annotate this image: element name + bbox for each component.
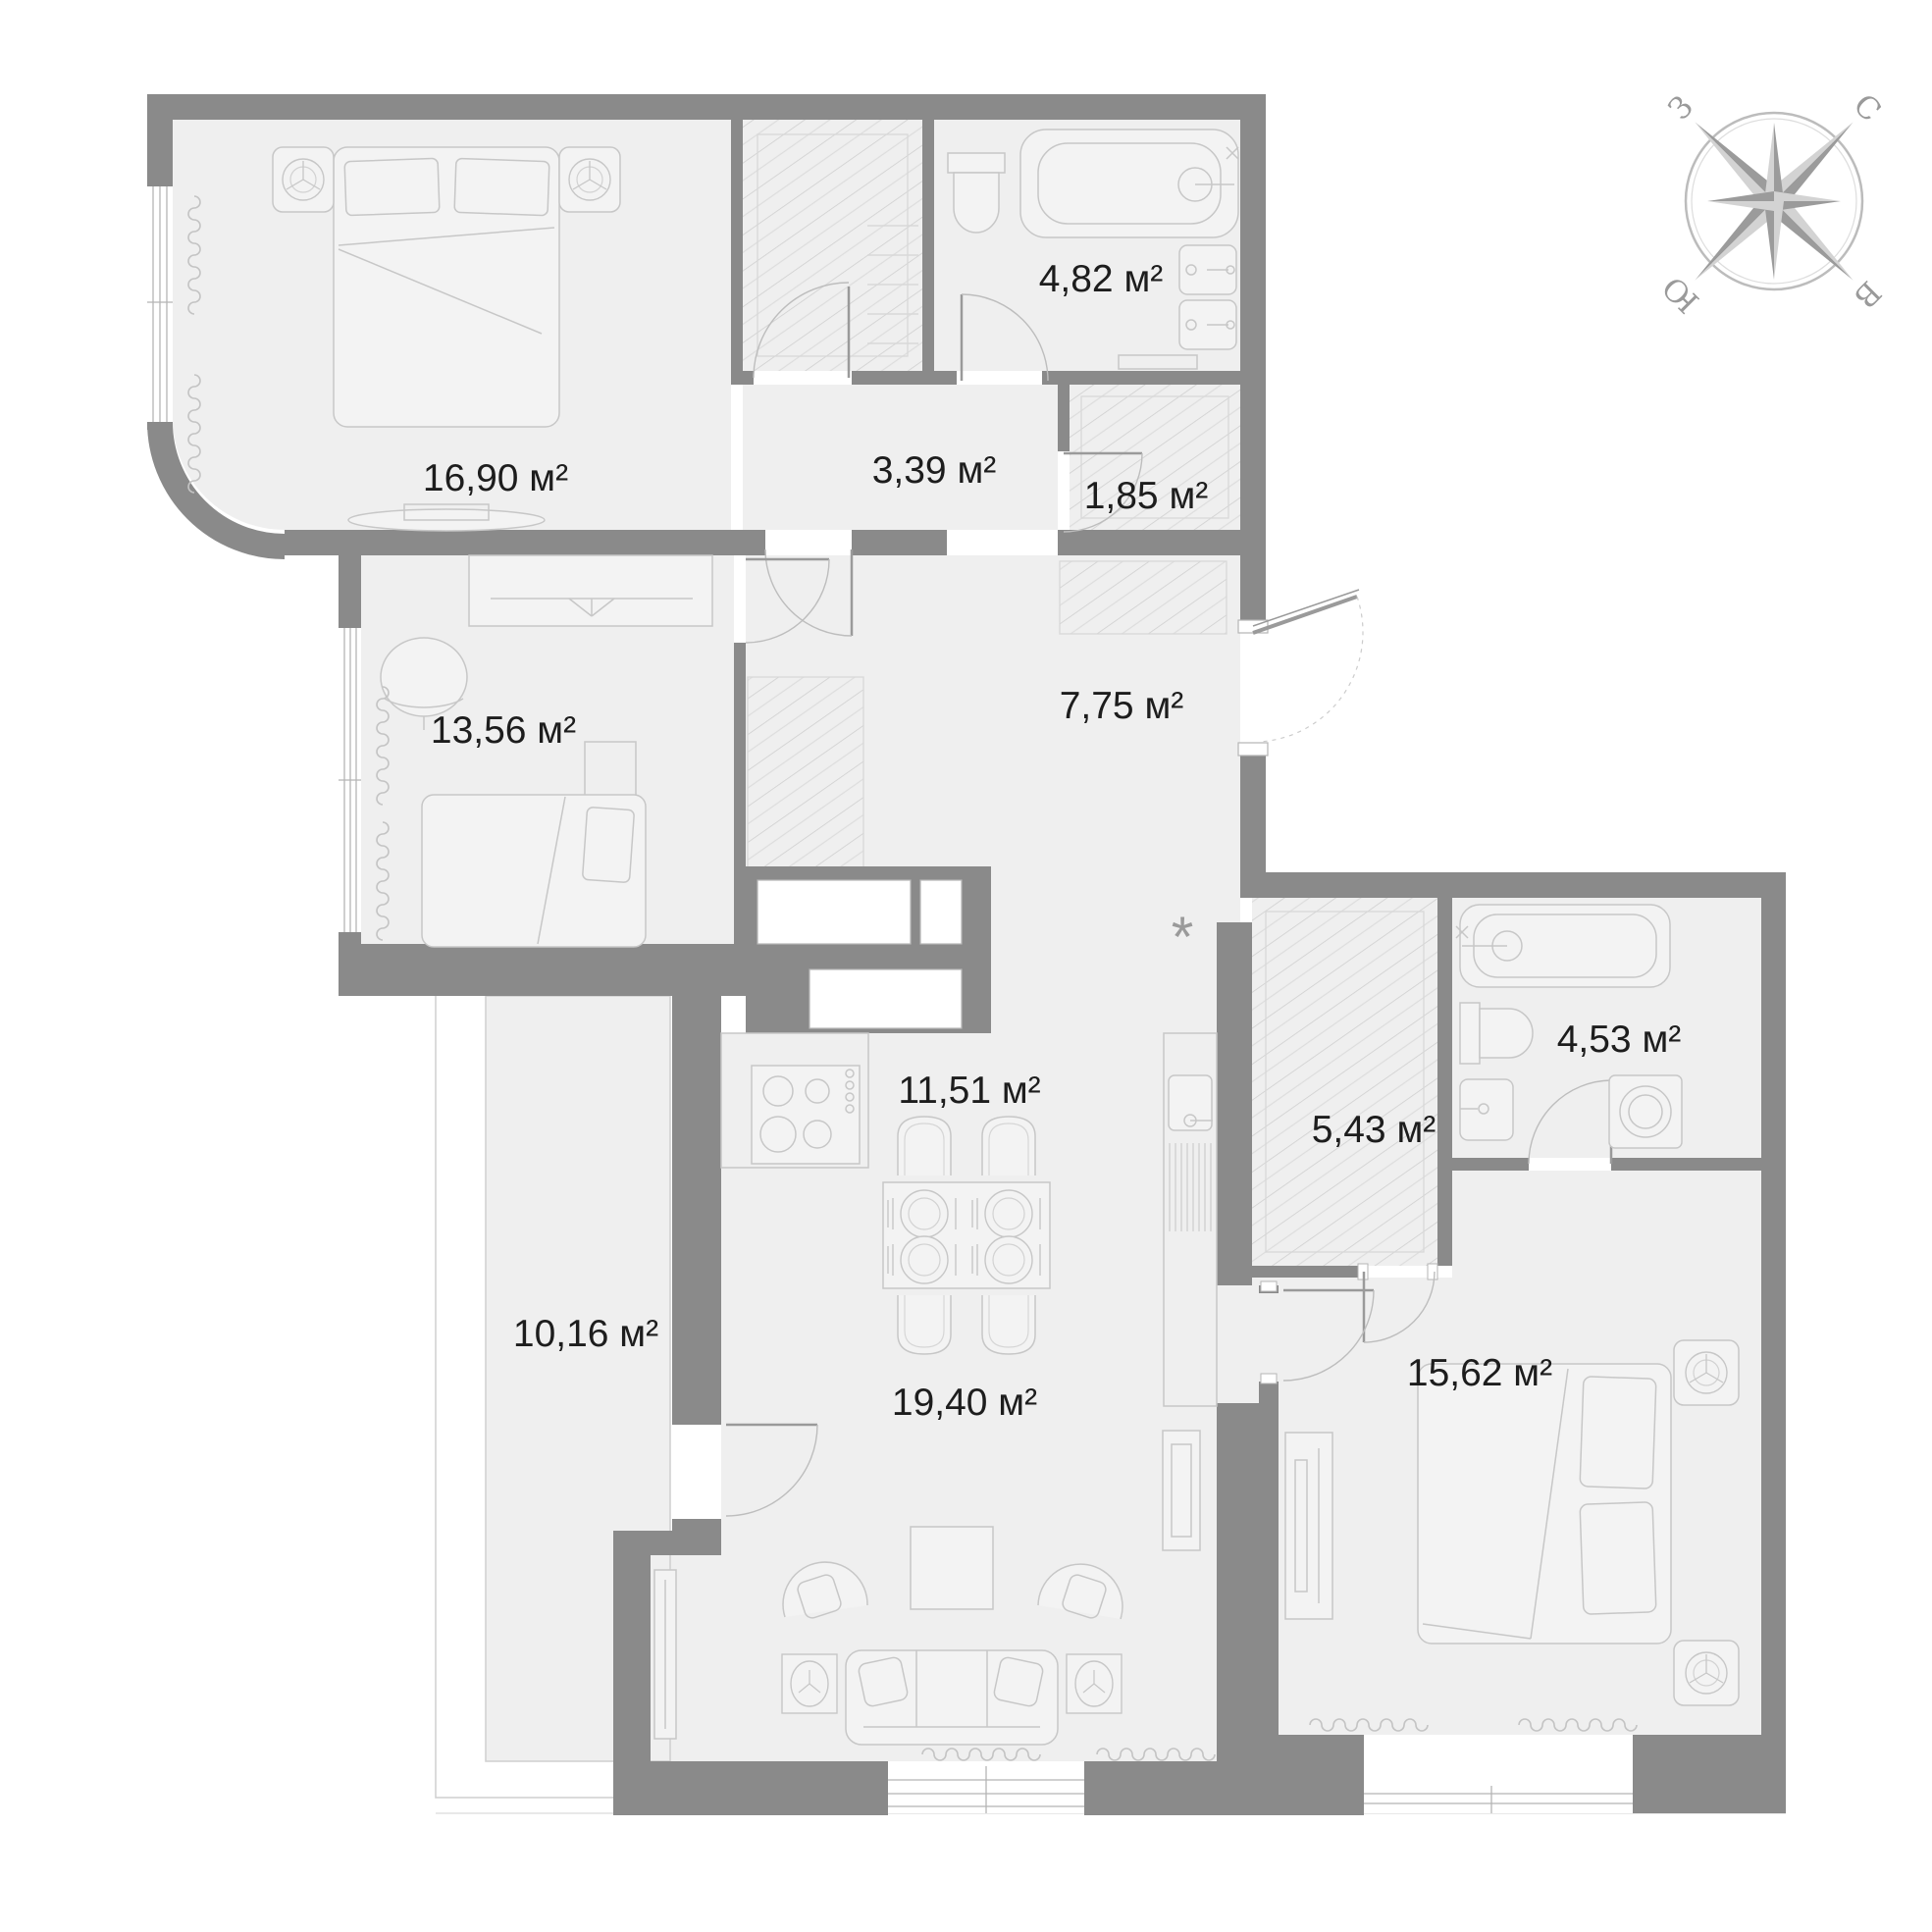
room-label-bedroom-1: 16,90 м²	[423, 457, 568, 499]
kitchen-note-asterisk: *	[1172, 906, 1194, 969]
nightstand-bedroom-3-bottom	[1674, 1641, 1739, 1705]
plant-table-icon	[782, 1654, 837, 1713]
window-living-room	[888, 1766, 1084, 1813]
room-label-bathroom-1: 4,82 м²	[1039, 258, 1164, 300]
balcony-door-opening	[672, 1425, 721, 1519]
window-bedroom-3	[1364, 1786, 1633, 1813]
corridor-wardrobe-hatch-b	[748, 677, 863, 869]
sink-bathroom-2	[1460, 1079, 1513, 1140]
desk-bedroom-2	[469, 555, 712, 626]
compass-rose-icon: С В Ю З	[1655, 87, 1887, 319]
bathtub-bathroom-2	[1456, 905, 1670, 987]
coffee-table	[911, 1527, 993, 1609]
floor-plan-page: 16,90 м² 4,82 м² 3,39 м² 1,85 м² 13,56 м…	[0, 0, 1932, 1932]
bed-double-bedroom-1	[334, 147, 559, 427]
toilet-bathroom-1	[948, 153, 1005, 233]
room-label-wardrobe: 5,43 м²	[1312, 1109, 1436, 1151]
room-label-balcony: 10,16 м²	[513, 1313, 658, 1355]
compass-west-label: З	[1662, 89, 1700, 128]
toilet-bathroom-2	[1460, 1003, 1533, 1064]
room-label-bedroom-3: 15,62 м²	[1407, 1352, 1552, 1394]
dining-chair	[898, 1117, 951, 1175]
compass-star	[1687, 114, 1861, 288]
floor-plan-drawing: 16,90 м² 4,82 м² 3,39 м² 1,85 м² 13,56 м…	[0, 0, 1932, 1932]
room-label-corridor: 7,75 м²	[1060, 685, 1184, 727]
window-bedroom-2	[339, 628, 361, 932]
dining-chair	[982, 1295, 1035, 1354]
dining-table	[883, 1182, 1050, 1288]
room-label-bathroom-2: 4,53 м²	[1557, 1018, 1682, 1061]
window-bedroom-1	[147, 186, 173, 422]
console-living	[1163, 1431, 1200, 1550]
dining-chair	[898, 1295, 951, 1354]
dining-chair	[982, 1117, 1035, 1175]
bed-double-bedroom-3	[1418, 1364, 1671, 1644]
room-label-living: 19,40 м²	[892, 1382, 1037, 1424]
room-label-storage: 1,85 м²	[1084, 475, 1209, 517]
washing-machine-icon	[1609, 1075, 1682, 1148]
room-label-hallway: 3,39 м²	[872, 449, 997, 492]
plant-table-icon	[1067, 1654, 1122, 1713]
dresser-bedroom-3	[1285, 1433, 1332, 1619]
sofa-living-room	[846, 1650, 1058, 1745]
room-label-bedroom-2: 13,56 м²	[431, 709, 576, 752]
shelf-living-niche	[654, 1570, 676, 1739]
wardrobe-hatch	[1252, 898, 1437, 1266]
room-label-kitchen: 11,51 м²	[898, 1070, 1040, 1112]
nightstand-bedroom-1-right	[559, 147, 620, 212]
kitchen-sink-icon	[1169, 1075, 1213, 1130]
nightstand-bedroom-3-top	[1674, 1340, 1739, 1405]
bathtub-bathroom-1	[1020, 130, 1238, 237]
stove-icon	[752, 1066, 860, 1164]
corridor-wardrobe-hatch-a	[1060, 561, 1227, 634]
closet-walk-hatch	[743, 120, 922, 371]
nightstand-bedroom-1-left	[273, 147, 334, 212]
bed-single-bedroom-2	[422, 795, 646, 947]
